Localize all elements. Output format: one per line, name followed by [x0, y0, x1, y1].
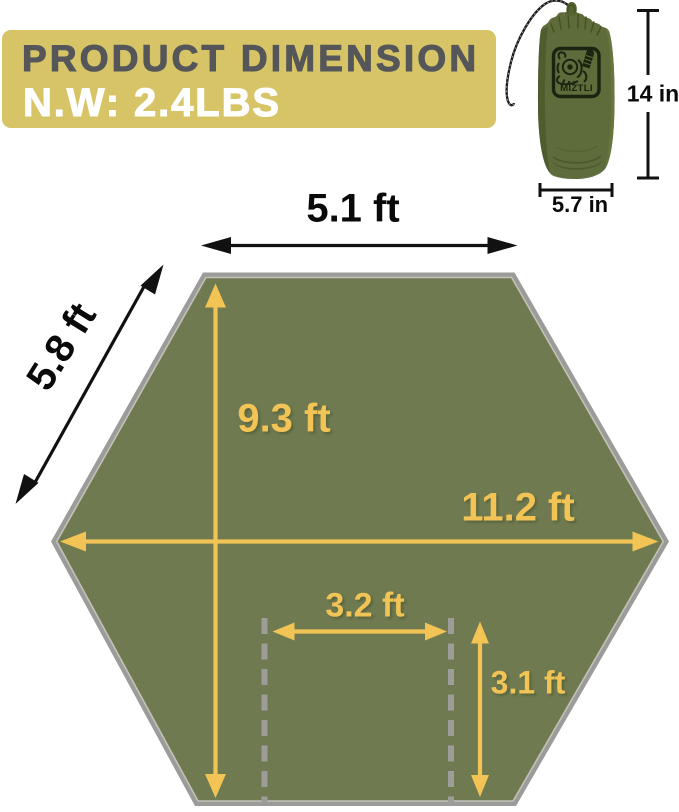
svg-text:MIZTLI: MIZTLI [560, 83, 593, 94]
